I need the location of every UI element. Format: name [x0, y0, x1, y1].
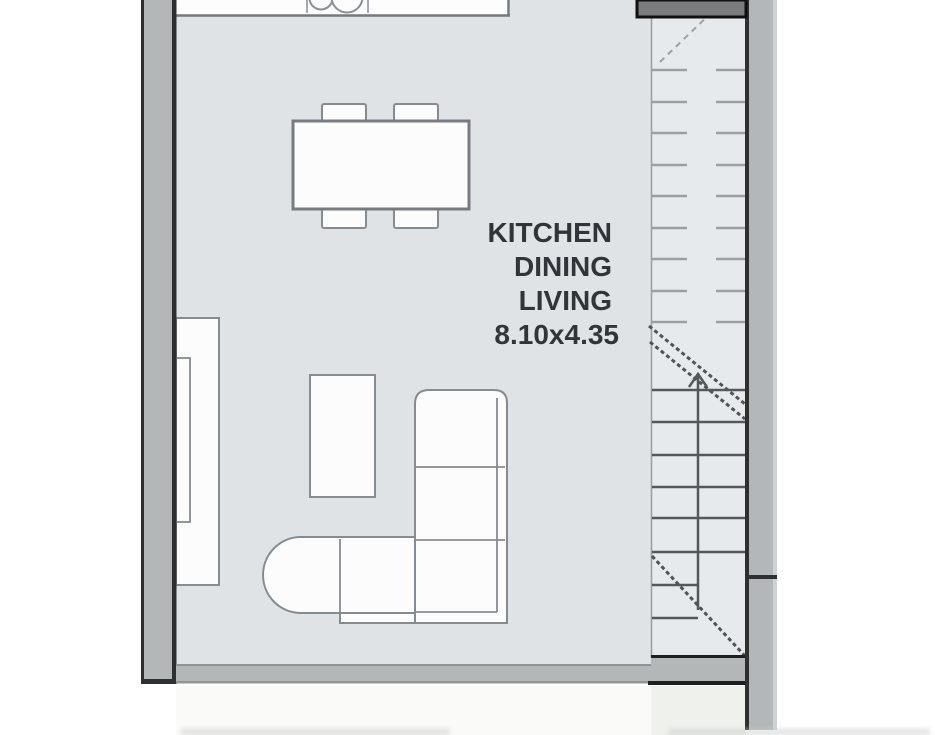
kitchen-counter — [176, 0, 510, 16]
left-wall-inner-line — [172, 0, 177, 684]
right-wall-outer-edge — [773, 0, 777, 730]
stair-bottom-edge — [651, 655, 746, 658]
dining-table — [293, 121, 469, 209]
room-label-dining: DINING — [514, 251, 612, 282]
right-wall-fill — [749, 0, 773, 730]
sofa-right-arm — [415, 390, 507, 623]
area-below-stairwell — [651, 686, 746, 735]
right-wall — [745, 0, 777, 730]
bottom-wall-stair-fill — [651, 658, 746, 682]
room-label-living: LIVING — [519, 285, 612, 316]
area-below-wall — [176, 686, 651, 735]
room-label-kitchen: KITCHEN — [488, 217, 612, 248]
floor-plan-canvas: KITCHEN DINING LIVING 8.10x4.35 — [0, 0, 935, 735]
tv-unit — [176, 318, 219, 585]
stair-landing-block — [637, 0, 746, 17]
bottom-crop-artifact — [180, 728, 450, 735]
left-wall-end-cap — [141, 679, 177, 684]
left-wall — [141, 0, 177, 684]
bottom-wall-fill — [176, 666, 651, 682]
floor-plan-page: KITCHEN DINING LIVING 8.10x4.35 — [0, 0, 935, 735]
right-wall-inner-line — [745, 0, 749, 730]
bottom-wall-bottom-edge — [176, 681, 651, 684]
dining-set — [293, 104, 469, 228]
room-dimensions: 8.10x4.35 — [494, 319, 619, 350]
bottom-wall-stair-edge — [648, 681, 746, 685]
right-wall-joint — [745, 575, 777, 579]
left-wall-fill — [144, 0, 172, 684]
left-wall-outer-line — [141, 0, 144, 684]
bottom-crop-artifact — [668, 728, 930, 735]
coffee-table — [310, 375, 375, 497]
